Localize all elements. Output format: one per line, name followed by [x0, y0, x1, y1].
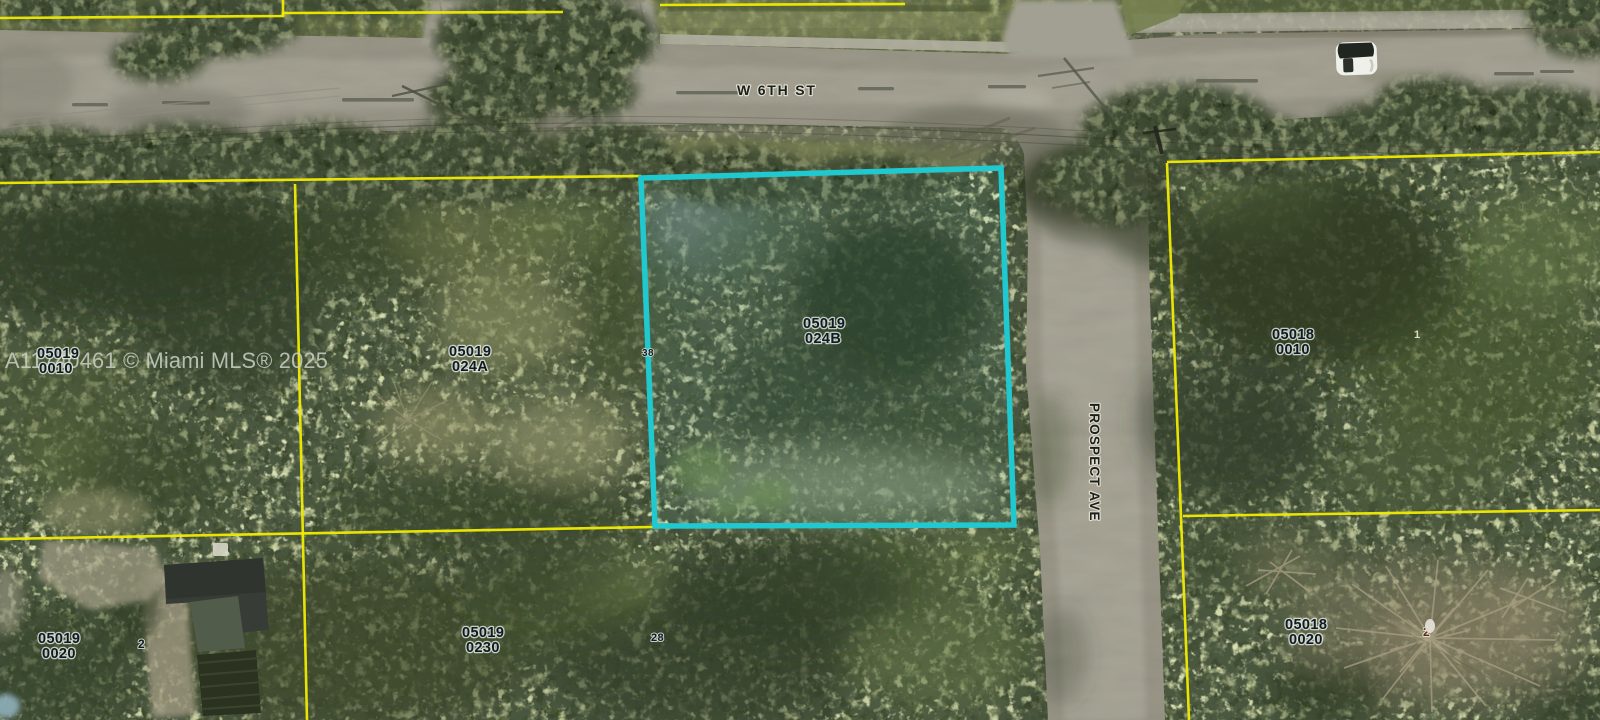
svg-text:PROSPECT AVE: PROSPECT AVE — [1087, 403, 1102, 522]
svg-text:024A: 024A — [452, 359, 488, 375]
svg-text:28: 28 — [651, 632, 664, 644]
svg-text:38: 38 — [642, 348, 654, 359]
svg-text:1: 1 — [1414, 329, 1421, 341]
svg-text:W 6TH ST: W 6TH ST — [737, 82, 817, 98]
svg-text:0010: 0010 — [1276, 342, 1310, 358]
svg-text:05019: 05019 — [803, 316, 845, 332]
svg-text:05018: 05018 — [1285, 617, 1327, 633]
svg-text:05019: 05019 — [449, 344, 491, 360]
svg-text:0010: 0010 — [39, 361, 73, 377]
svg-text:05019: 05019 — [462, 625, 504, 641]
svg-text:05018: 05018 — [1272, 327, 1314, 343]
svg-text:0020: 0020 — [1289, 632, 1323, 648]
svg-text:0020: 0020 — [42, 646, 76, 662]
svg-text:05019: 05019 — [38, 631, 80, 647]
svg-text:024B: 024B — [805, 331, 841, 347]
svg-text:0230: 0230 — [466, 640, 500, 656]
svg-text:05019: 05019 — [37, 346, 79, 362]
svg-text:2: 2 — [138, 637, 145, 651]
